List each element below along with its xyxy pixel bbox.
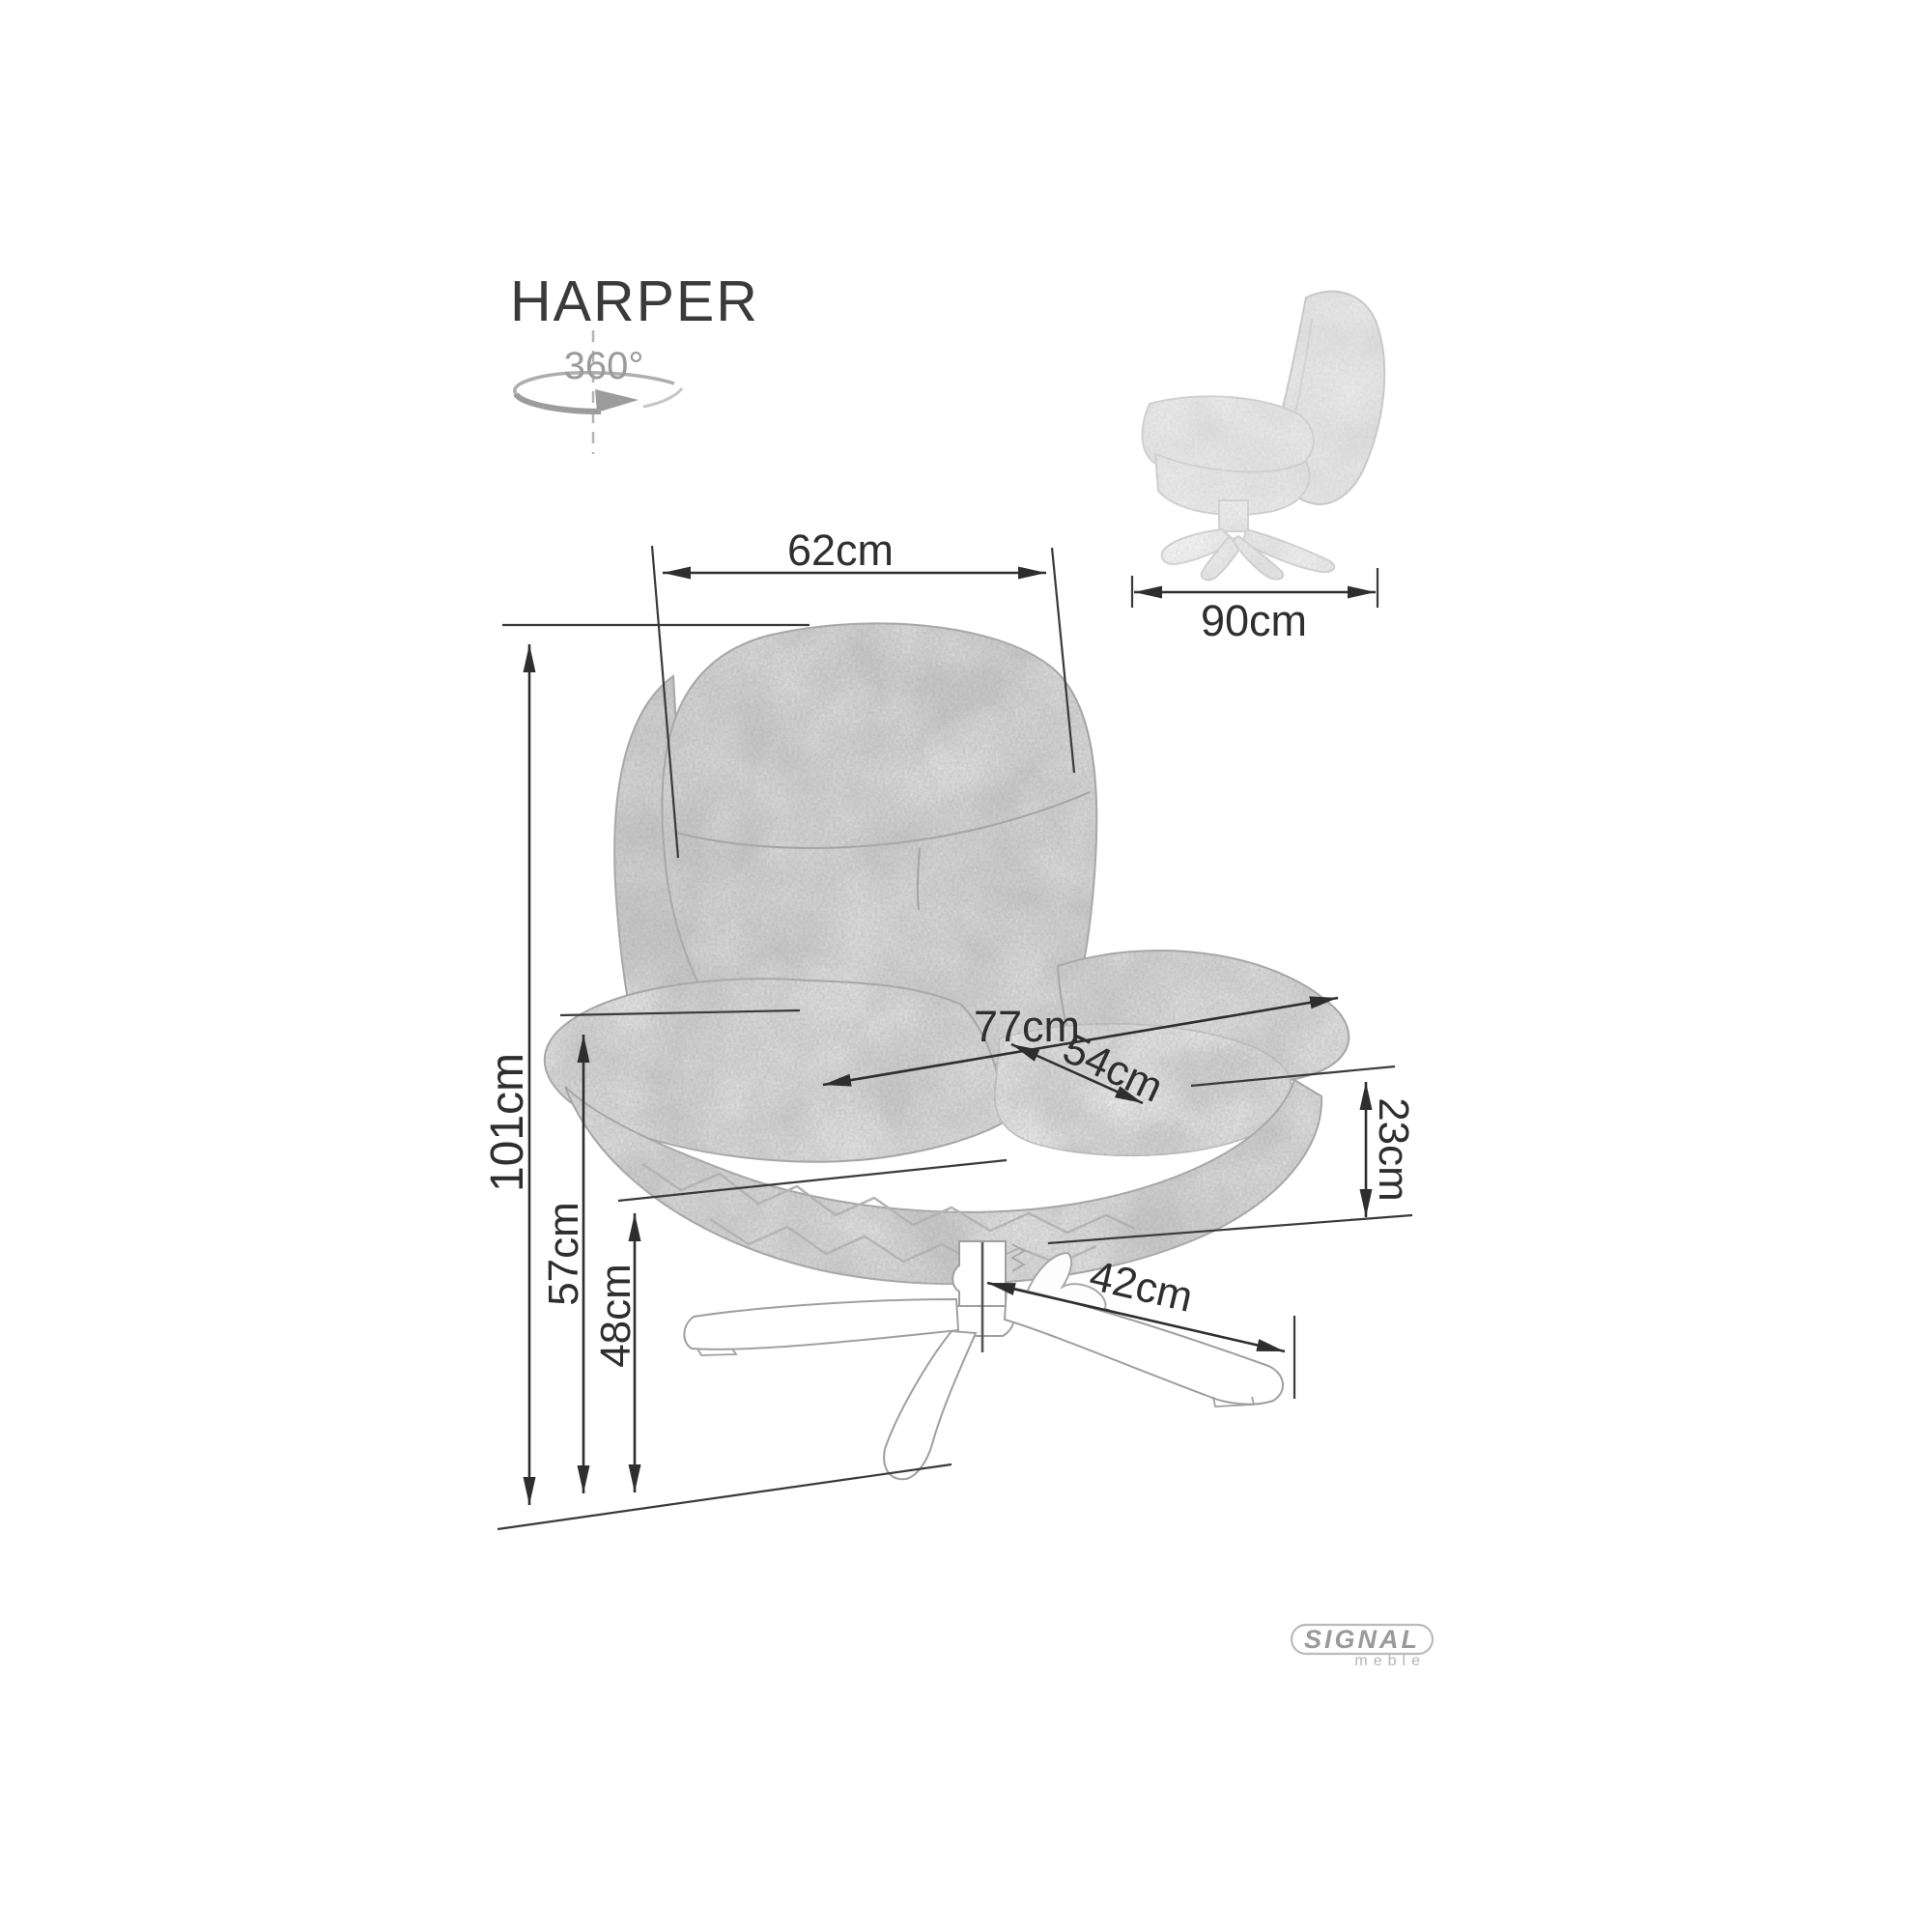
rotation-arrow-icon — [595, 389, 639, 412]
side-column — [1219, 500, 1248, 531]
brand-logo: SIGNAL meble — [1292, 1625, 1433, 1669]
dim-77-label: 77cm — [974, 1002, 1080, 1051]
brand-subtitle: meble — [1354, 1653, 1426, 1669]
rotation-degrees-label: 360° — [564, 345, 644, 387]
page-title: HARPER — [510, 270, 759, 333]
rotation-arc-fade — [643, 388, 682, 407]
chair-side-view — [1143, 292, 1385, 581]
front-leg-left — [684, 1299, 958, 1350]
chair-front-view — [545, 623, 1349, 1284]
product-dimension-sheet: HARPER 360° 90cm — [0, 0, 1932, 1932]
floor-line — [497, 1464, 952, 1529]
brand-name: SIGNAL — [1304, 1625, 1420, 1654]
dim-depth-90: 90cm — [1132, 568, 1378, 645]
front-column — [952, 1241, 1006, 1308]
dim-48-label: 48cm — [592, 1264, 639, 1368]
dim-23-label: 23cm — [1370, 1097, 1417, 1202]
dim-90-label: 90cm — [1201, 596, 1307, 645]
rotation-arc-bottom — [516, 394, 601, 412]
dim-62-label: 62cm — [787, 526, 894, 575]
dim-57-label: 57cm — [540, 1202, 587, 1306]
diagram-canvas: HARPER 360° 90cm — [0, 0, 1932, 1932]
rotation-360-icon: 360° — [515, 330, 682, 454]
dim-101-label: 101cm — [482, 1053, 533, 1192]
front-leg-front — [884, 1331, 976, 1479]
